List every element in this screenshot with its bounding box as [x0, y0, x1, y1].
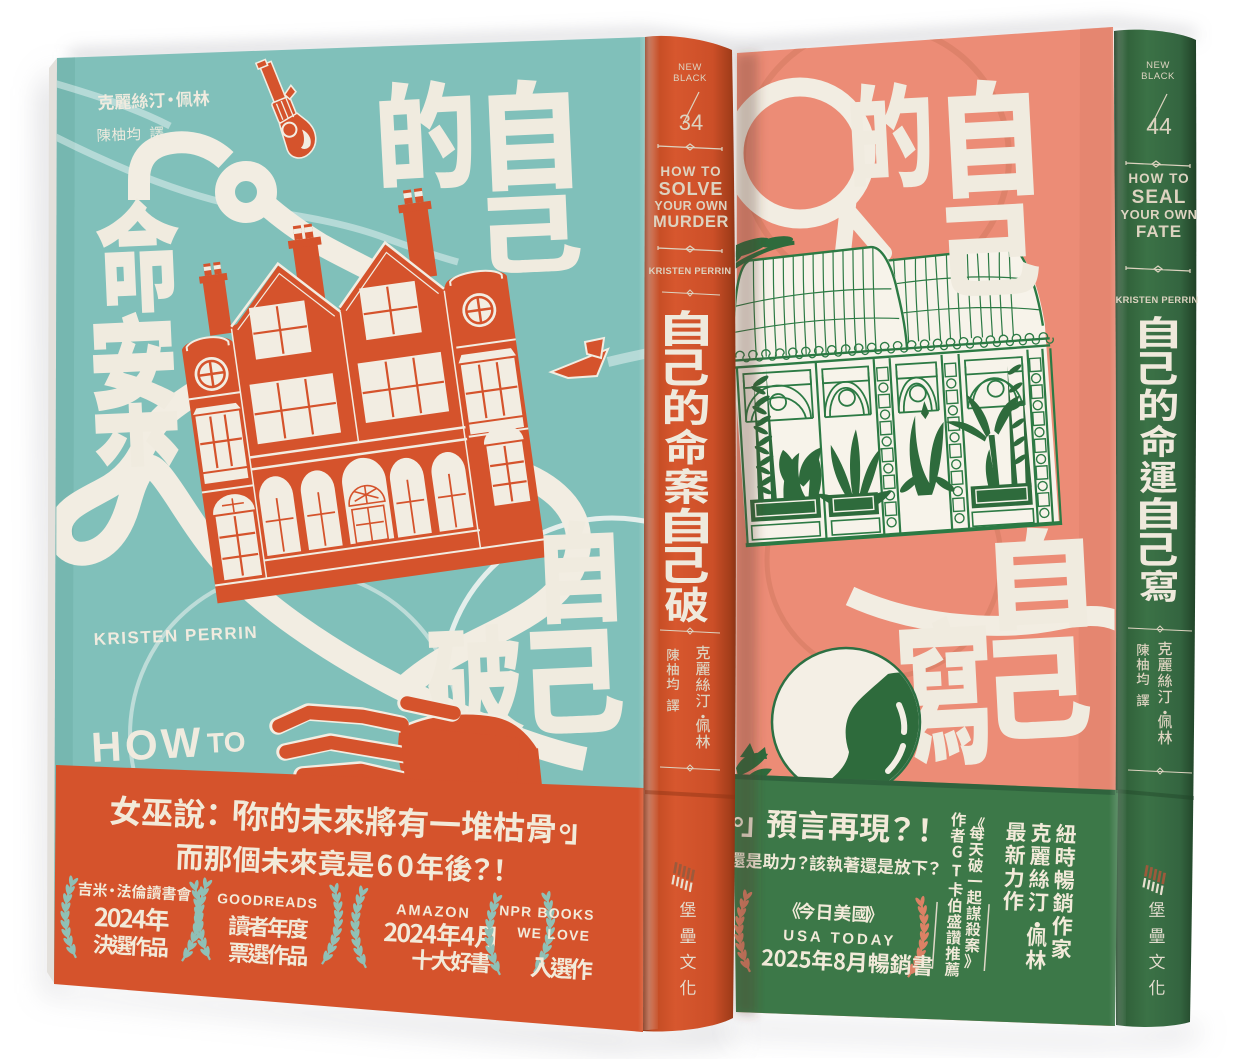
- svg-text:44: 44: [1146, 113, 1172, 139]
- svg-text:MURDER: MURDER: [653, 213, 729, 231]
- svg-text:KRISTEN PERRIN: KRISTEN PERRIN: [1116, 295, 1199, 305]
- svg-text:NEW: NEW: [678, 62, 702, 73]
- svg-text:SEAL: SEAL: [1132, 187, 1187, 208]
- svg-text:YOUR OWN: YOUR OWN: [1121, 207, 1198, 222]
- svg-text:HOW: HOW: [90, 718, 205, 771]
- svg-text:NEW: NEW: [1146, 60, 1170, 71]
- svg-text:BLACK: BLACK: [673, 73, 707, 84]
- svg-text:HOW TO: HOW TO: [1128, 171, 1189, 186]
- svg-text:SOLVE: SOLVE: [659, 179, 724, 199]
- svg-text:BLACK: BLACK: [1141, 71, 1175, 82]
- svg-text:KRISTEN PERRIN: KRISTEN PERRIN: [649, 266, 732, 276]
- svg-text:HOW TO: HOW TO: [660, 164, 721, 179]
- svg-text:YOUR OWN: YOUR OWN: [654, 199, 727, 213]
- svg-text:TO: TO: [206, 726, 246, 759]
- svg-text:FATE: FATE: [1136, 222, 1182, 241]
- svg-text:34: 34: [679, 110, 703, 135]
